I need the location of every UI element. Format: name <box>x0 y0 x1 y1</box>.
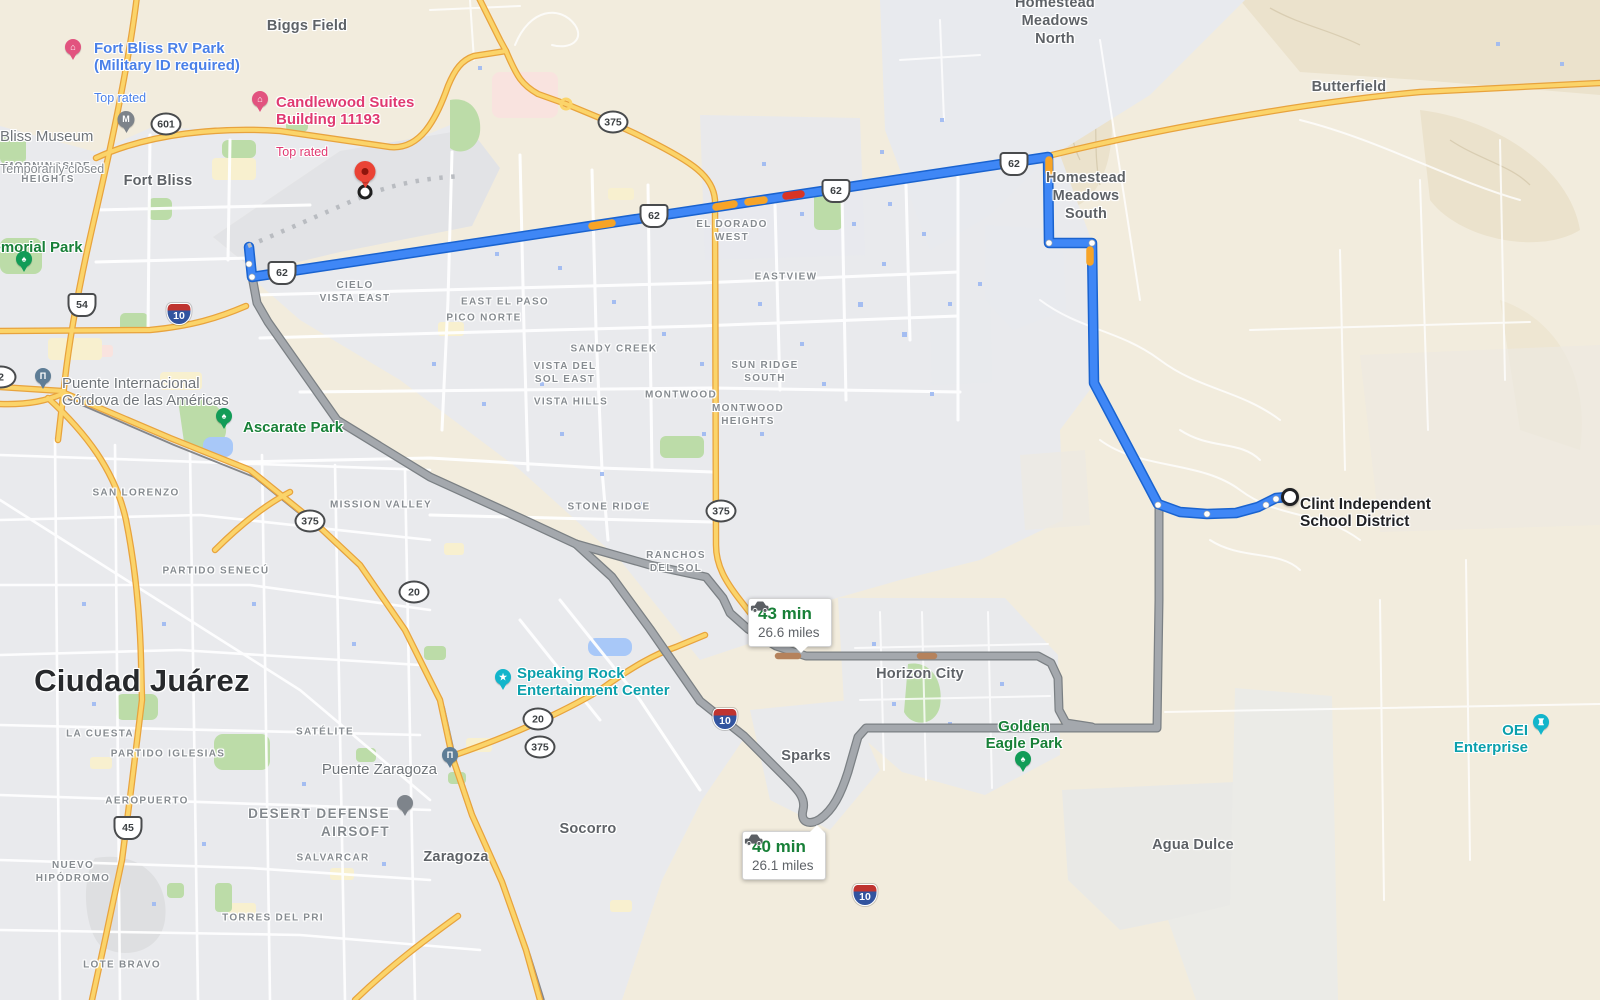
route-end-dot <box>1281 488 1299 506</box>
car-icon <box>743 832 764 848</box>
park-pin-golden-eagle[interactable]: ♠ <box>1015 751 1031 772</box>
route-distance: 26.1 miles <box>752 858 814 873</box>
route-bubble-40[interactable]: 40 min 26.1 miles <box>742 831 826 880</box>
red-pin-head <box>355 161 376 182</box>
hotel-pin-fort-bliss-rv[interactable]: ⌂ <box>65 39 81 60</box>
red-location-pin[interactable] <box>355 161 376 188</box>
hotel-pin-candlewood[interactable]: ⌂ <box>252 91 268 112</box>
landmark-pin-oei[interactable]: ♜ <box>1533 714 1549 735</box>
car-icon <box>749 599 770 615</box>
bridge-pin-puente-zaragoza[interactable]: П <box>442 747 458 768</box>
park-pin-ascarate[interactable]: ♠ <box>216 408 232 429</box>
route-bubble-43[interactable]: 43 min 26.6 miles <box>748 598 832 647</box>
attraction-pin-speaking-rock[interactable]: ★ <box>495 669 511 690</box>
map-canvas[interactable]: Biggs FieldFort BlissButterfieldHomestea… <box>0 0 1600 1000</box>
place-pin-airsoft[interactable] <box>397 795 413 816</box>
museum-icon-bliss[interactable]: M <box>118 111 135 133</box>
bridge-pin-puente-internacional[interactable]: П <box>35 368 51 389</box>
route-distance: 26.6 miles <box>758 625 820 640</box>
park-pin-memorial[interactable]: ♠ <box>16 251 32 272</box>
